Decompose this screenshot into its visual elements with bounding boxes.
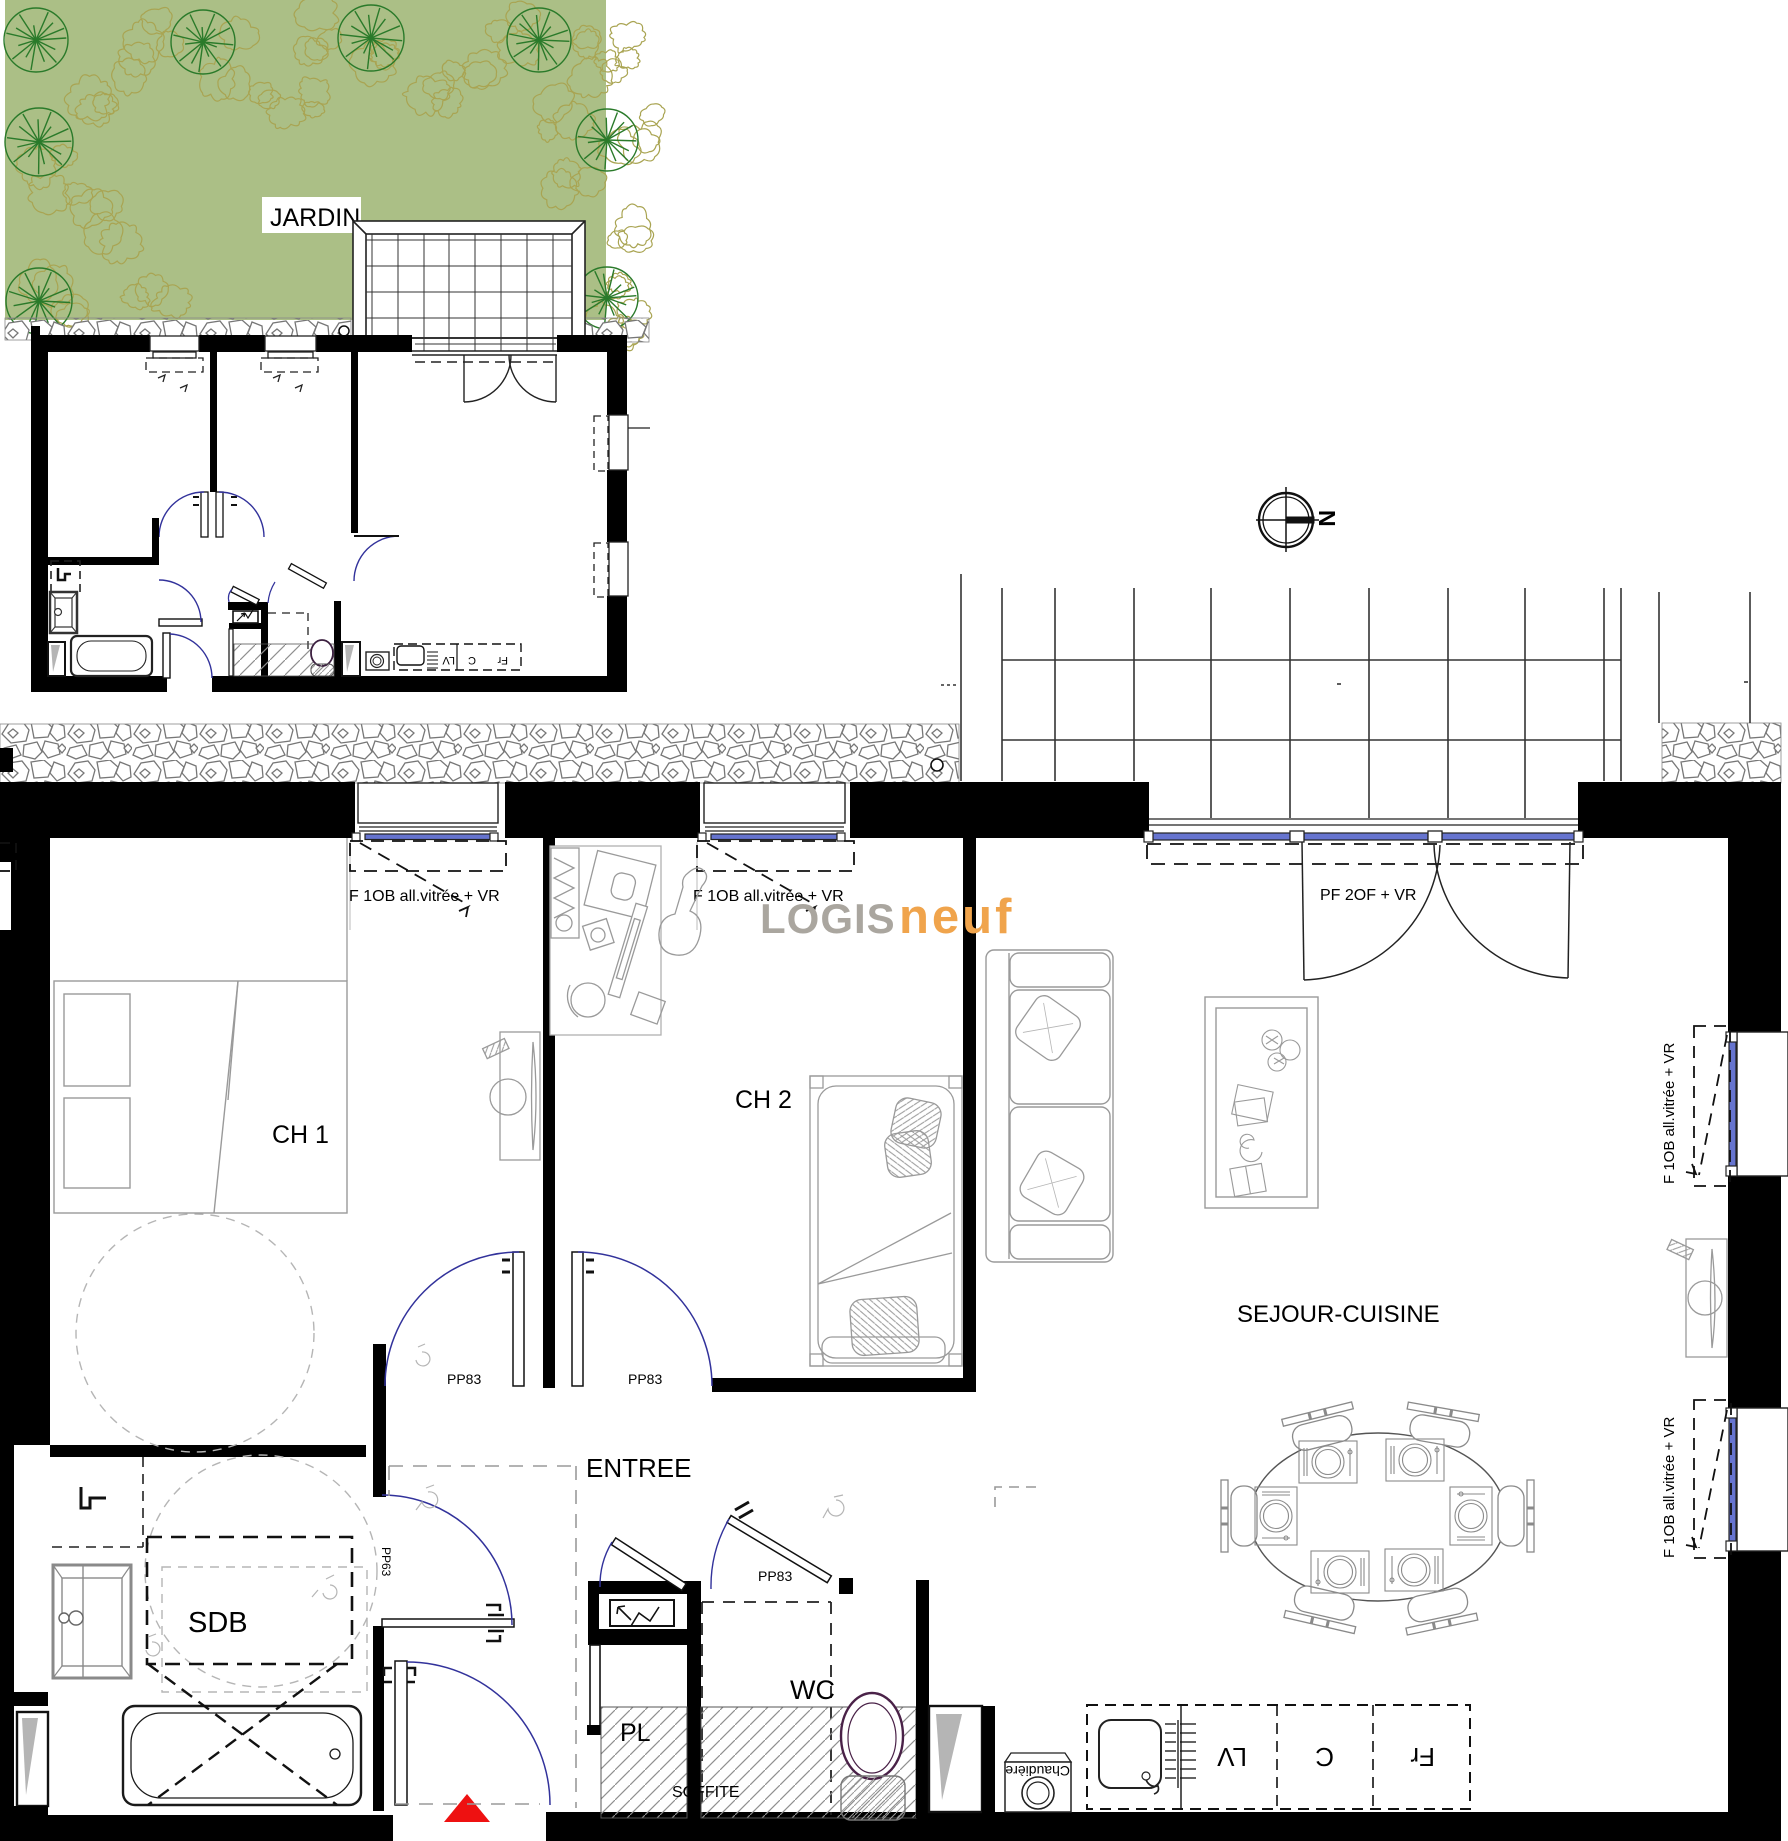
svg-text:C: C bbox=[1315, 1742, 1334, 1772]
svg-text:Chaudière: Chaudière bbox=[1005, 1763, 1070, 1779]
svg-text:neuf: neuf bbox=[899, 890, 1014, 944]
svg-text:JARDIN: JARDIN bbox=[270, 204, 360, 232]
svg-text:C: C bbox=[468, 654, 476, 666]
svg-text:N: N bbox=[1314, 510, 1340, 527]
svg-text:F 1OB all.vitrée + VR: F 1OB all.vitrée + VR bbox=[1661, 1043, 1678, 1184]
svg-text:LOGIS: LOGIS bbox=[760, 895, 896, 942]
svg-text:Fr: Fr bbox=[1410, 1742, 1435, 1772]
svg-text:PP83: PP83 bbox=[628, 1371, 662, 1387]
svg-text:ENTREE: ENTREE bbox=[586, 1453, 691, 1483]
svg-text:PP83: PP83 bbox=[758, 1568, 792, 1584]
svg-text:PP63: PP63 bbox=[379, 1547, 393, 1577]
svg-text:LV: LV bbox=[442, 654, 455, 666]
svg-text:F 1OB all.vitrée + VR: F 1OB all.vitrée + VR bbox=[1661, 1417, 1678, 1558]
svg-text:PP83: PP83 bbox=[447, 1371, 481, 1387]
svg-text:Fr: Fr bbox=[497, 654, 508, 666]
svg-text:LV: LV bbox=[1216, 1742, 1247, 1772]
svg-text:PL: PL bbox=[620, 1719, 651, 1747]
svg-text:CH 2: CH 2 bbox=[735, 1086, 792, 1114]
svg-text:SEJOUR-CUISINE: SEJOUR-CUISINE bbox=[1237, 1301, 1440, 1328]
svg-text:F 1OB all.vitrée + VR: F 1OB all.vitrée + VR bbox=[349, 888, 500, 905]
svg-text:WC: WC bbox=[790, 1675, 835, 1705]
svg-text:SOFFITE: SOFFITE bbox=[672, 1784, 740, 1801]
svg-text:CH 1: CH 1 bbox=[272, 1121, 329, 1149]
svg-text:SDB: SDB bbox=[188, 1607, 248, 1639]
svg-text:PF 2OF + VR: PF 2OF + VR bbox=[1320, 887, 1416, 904]
